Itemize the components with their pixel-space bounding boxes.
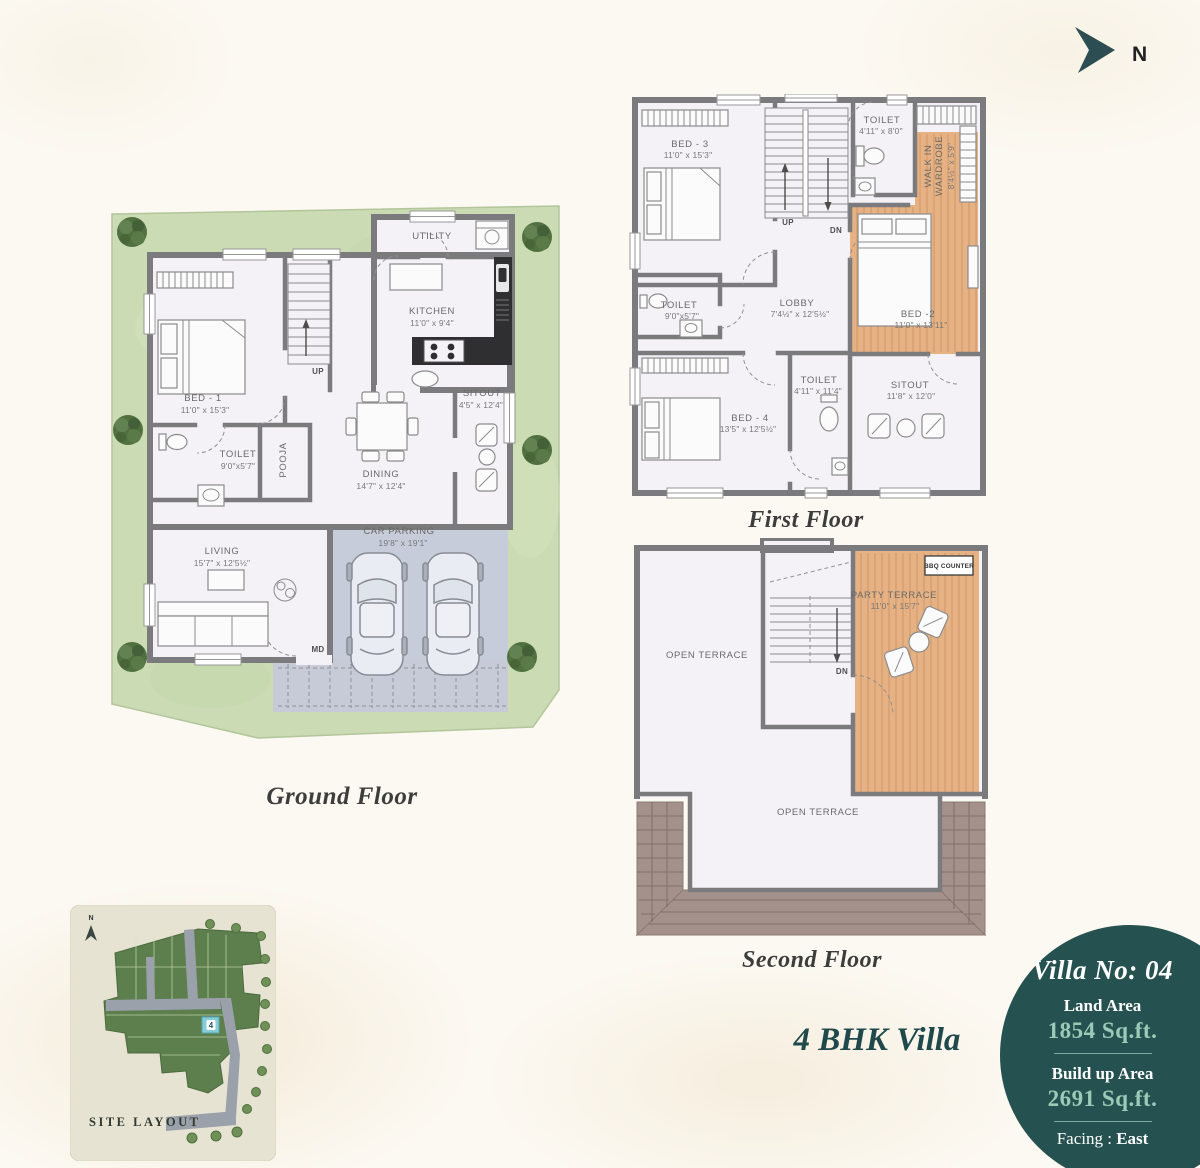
staircase-icon bbox=[765, 108, 848, 218]
sitout-chairs-icon bbox=[476, 424, 497, 491]
north-label: N bbox=[1132, 43, 1147, 66]
dim-toilet-top: 4'11" x 8'0" bbox=[859, 126, 903, 136]
sink-icon bbox=[198, 485, 224, 506]
north-arrow: N bbox=[1058, 14, 1178, 86]
facing-row: Facing : East bbox=[1000, 1129, 1200, 1149]
bed4-icon bbox=[642, 358, 728, 460]
wardrobe-icon bbox=[642, 110, 728, 126]
dim-sitout-gf: 4'5" x 12'4" bbox=[459, 400, 503, 410]
first-floor-caption: First Floor bbox=[656, 507, 956, 534]
dim-toilet-left: 9'0"x5'7" bbox=[665, 311, 699, 321]
label-md: MD bbox=[311, 645, 324, 654]
site-layout: 4 N SITE LAYOUT bbox=[70, 905, 276, 1161]
label-party-terrace: PARTY TERRACE bbox=[851, 590, 937, 601]
washbasin-icon bbox=[412, 371, 438, 387]
facing-value: East bbox=[1116, 1129, 1148, 1148]
site-layout-caption: SITE LAYOUT bbox=[89, 1115, 200, 1129]
second-floor-plan: OPEN TERRACE PARTY TERRACE 11'0" x 15'7"… bbox=[633, 538, 989, 940]
dim-lobby: 7'4½" x 12'5½" bbox=[771, 309, 830, 319]
staircase-icon bbox=[288, 264, 330, 364]
dim-dining: 14'7" x 12'4" bbox=[356, 481, 405, 491]
label-car-parking: CAR PARKING bbox=[363, 526, 434, 537]
label-bed3: BED - 3 bbox=[671, 139, 708, 150]
villa-type-title: 4 BHK Villa bbox=[727, 1022, 1027, 1059]
label-bed4: BED - 4 bbox=[731, 413, 768, 424]
dim-party-terrace: 11'0" x 15'7" bbox=[871, 601, 920, 611]
facing-label: Facing : bbox=[1057, 1129, 1117, 1148]
label-kitchen: KITCHEN bbox=[409, 306, 455, 317]
dim-toilet-mid: 4'11" x 11'4" bbox=[794, 386, 842, 396]
site-north-label: N bbox=[88, 915, 93, 922]
villa-info-card: Villa No: 04 Land Area 1854 Sq.ft. Build… bbox=[1000, 925, 1200, 1168]
label-up-ff: UP bbox=[782, 218, 794, 227]
villa-number: Villa No: 04 bbox=[1000, 955, 1200, 986]
floorplan-brochure: N bbox=[0, 0, 1200, 1168]
kitchen-island bbox=[390, 264, 442, 290]
label-sitout-gf: SITOUT bbox=[463, 388, 501, 399]
divider bbox=[1054, 1121, 1152, 1122]
label-open-terrace-top: OPEN TERRACE bbox=[666, 650, 748, 661]
label-up-gf: UP bbox=[312, 367, 324, 376]
label-lobby: LOBBY bbox=[780, 298, 815, 309]
dim-bed4: 13'5" x 12'5½" bbox=[720, 424, 777, 434]
label-toilet-top: TOILET bbox=[864, 115, 901, 126]
label-toilet-left: TOILET bbox=[661, 300, 698, 311]
build-area-value: 2691 Sq.ft. bbox=[1000, 1086, 1200, 1112]
utility-appliance-icon bbox=[476, 221, 508, 249]
bed3-icon bbox=[644, 168, 720, 240]
label-open-terrace-bottom: OPEN TERRACE bbox=[777, 807, 859, 818]
label-living: LIVING bbox=[205, 546, 240, 557]
plot-number: 4 bbox=[209, 1021, 214, 1030]
label-toilet-mid: TOILET bbox=[801, 375, 838, 386]
dim-kitchen: 11'0" x 9'4" bbox=[410, 318, 454, 328]
label-bed2: BED -2 bbox=[901, 309, 935, 320]
dim-car-parking: 19'8" x 19'1" bbox=[378, 538, 427, 548]
first-floor-plan: BED - 3 11'0" x 15'3" TOILET 4'11" x 8'0… bbox=[628, 94, 990, 508]
second-floor-caption: Second Floor bbox=[662, 947, 962, 974]
toilet-icon bbox=[159, 434, 187, 450]
watercolor-blob bbox=[0, 0, 240, 160]
label-sitout-ff: SITOUT bbox=[891, 380, 929, 391]
land-area-label: Land Area bbox=[1000, 996, 1200, 1016]
dim-wardrobe: 8'4½" x 5'9" bbox=[946, 143, 956, 190]
divider bbox=[1054, 1053, 1152, 1054]
label-bbq-counter: BBQ COUNTER bbox=[924, 563, 974, 570]
dim-bed3: 11'0" x 15'3" bbox=[664, 150, 713, 160]
build-area-label: Build up Area bbox=[1000, 1064, 1200, 1084]
wood-floor bbox=[855, 551, 979, 794]
label-pooja: POOJA bbox=[278, 442, 289, 477]
bed1-icon bbox=[158, 320, 245, 394]
dim-sitout-ff: 11'8" x 12'0" bbox=[887, 391, 936, 401]
stove-icon bbox=[424, 340, 464, 362]
label-utility: UTILITY bbox=[412, 231, 452, 242]
dim-bed2: 11'0" x 13'11" bbox=[895, 320, 948, 330]
label-toilet-gf: TOILET bbox=[220, 449, 257, 460]
label-dn-sf: DN bbox=[836, 667, 848, 676]
label-bed1: BED - 1 bbox=[184, 393, 221, 404]
label-wardrobe-1: WALK IN bbox=[923, 145, 934, 188]
label-dn-ff: DN bbox=[830, 226, 842, 235]
label-dining: DINING bbox=[363, 469, 400, 480]
north-arrow-icon bbox=[1075, 27, 1115, 73]
ground-floor-plan: UTILITY KITCHEN 11'0" x 9'4" BED - 1 11'… bbox=[110, 198, 570, 750]
label-wardrobe-2: WARDROBE bbox=[934, 136, 945, 196]
dim-bed1: 11'0" x 15'3" bbox=[181, 405, 230, 415]
dim-living: 15'7" x 12'5½" bbox=[194, 558, 251, 568]
wardrobe-icon bbox=[157, 272, 233, 288]
ground-floor-caption: Ground Floor bbox=[192, 783, 492, 811]
land-area-value: 1854 Sq.ft. bbox=[1000, 1018, 1200, 1044]
watercolor-blob bbox=[480, 950, 1040, 1168]
dim-toilet-gf: 9'0"x5'7" bbox=[221, 461, 255, 471]
